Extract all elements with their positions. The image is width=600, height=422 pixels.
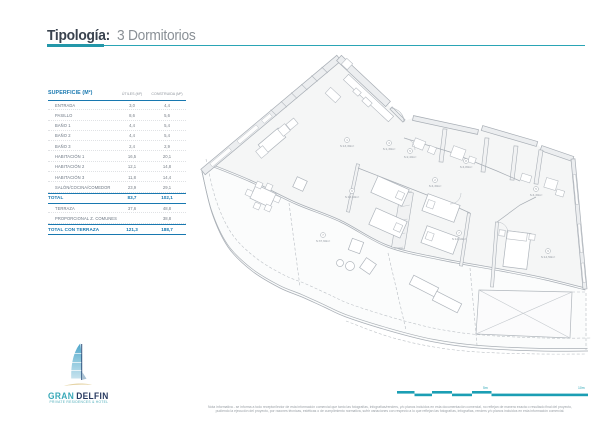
svg-text:S:2,40m²: S:2,40m² bbox=[404, 155, 417, 159]
svg-text:S:13,60m²: S:13,60m² bbox=[345, 195, 359, 199]
svg-text:S:37,60m²: S:37,60m² bbox=[316, 239, 330, 243]
svg-text:S:4,30m²: S:4,30m² bbox=[429, 184, 442, 188]
svg-text:S:13,30m²: S:13,30m² bbox=[340, 144, 354, 148]
svg-text:S:14,50m²: S:14,50m² bbox=[541, 255, 555, 259]
svg-text:S:1,30m²: S:1,30m² bbox=[383, 147, 396, 151]
svg-text:S:4,30m²: S:4,30m² bbox=[530, 193, 543, 197]
svg-text:S:4,80m²: S:4,80m² bbox=[460, 165, 473, 169]
svg-text:S:12,10m²: S:12,10m² bbox=[452, 237, 466, 241]
